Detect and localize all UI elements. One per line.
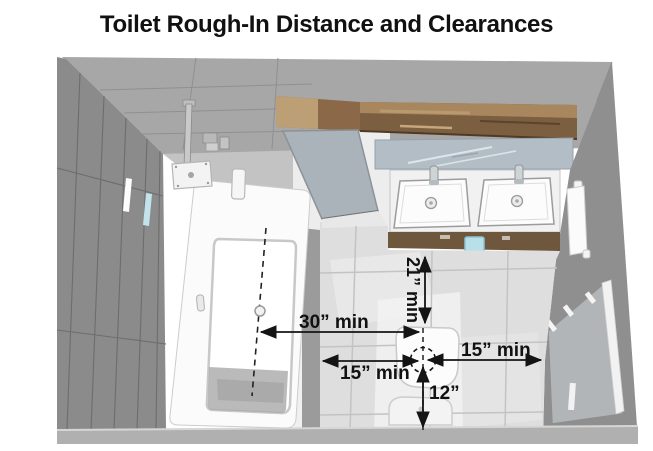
screenshot: Toilet Rough-In Distance and Clearances — [0, 0, 653, 451]
tub-drain — [255, 306, 265, 316]
vanity — [388, 165, 560, 256]
tub-spout — [231, 169, 245, 199]
dim-label-30min: 30” min — [299, 312, 369, 333]
bathtub — [170, 169, 310, 428]
faucet-left — [430, 166, 438, 182]
mirror — [375, 138, 573, 169]
dim-front-clearance: 21” min — [403, 257, 425, 323]
dim-label-21min: 21” min — [403, 257, 423, 323]
dim-label-12in: 12” — [429, 383, 460, 404]
tub-handle — [196, 295, 204, 312]
dim-label-15min-right: 15” min — [461, 340, 531, 361]
faucet-right — [515, 165, 523, 181]
bottom-wall — [57, 426, 638, 444]
bathroom-rendering: 30” min 21” min 15” min 15” min 12” — [0, 0, 653, 451]
shower-valve — [203, 133, 217, 143]
dim-label-15min-left: 15” min — [340, 363, 410, 384]
